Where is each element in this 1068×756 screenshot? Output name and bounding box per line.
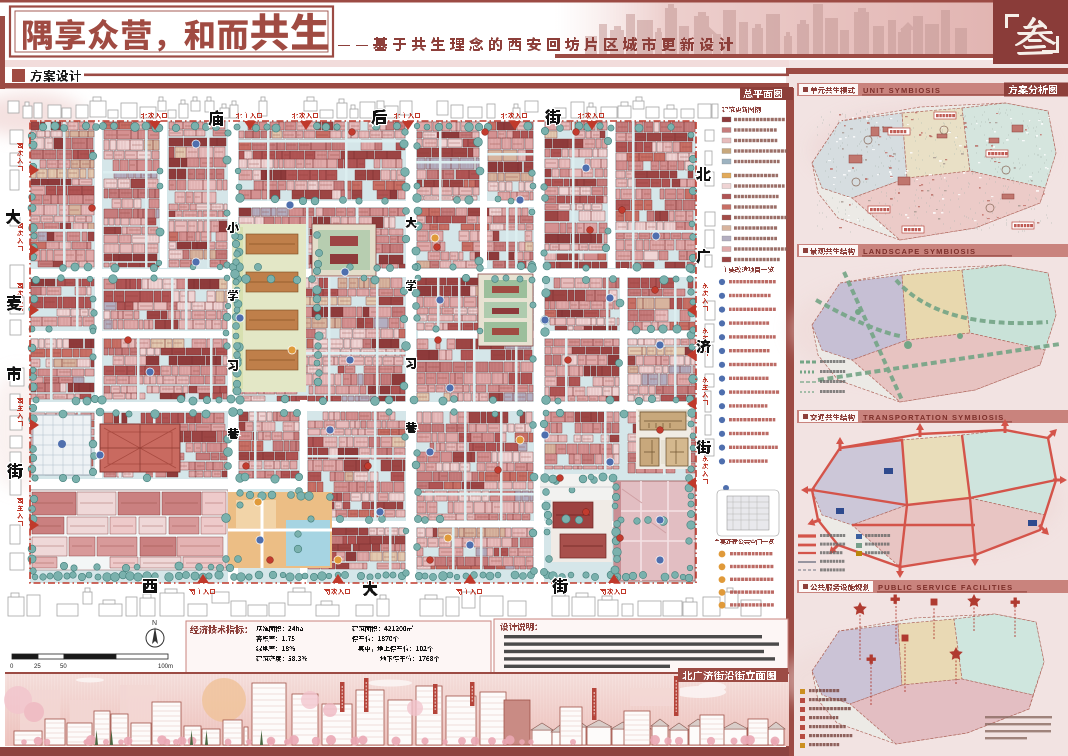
svg-text:25: 25	[34, 664, 41, 670]
svg-text:PUBLIC SERVICE FACILITIES: PUBLIC SERVICE FACILITIES	[878, 583, 1013, 592]
svg-text:50: 50	[60, 664, 67, 670]
svg-text:TRANSPORTATION SYMBIOSIS: TRANSPORTATION SYMBIOSIS	[863, 413, 1004, 422]
svg-text:100m: 100m	[158, 664, 173, 670]
svg-text:UNIT SYMBIOSIS: UNIT SYMBIOSIS	[863, 86, 941, 95]
svg-text:N: N	[152, 620, 157, 627]
svg-text:LANDSCAPE SYMBIOSIS: LANDSCAPE SYMBIOSIS	[863, 247, 976, 256]
